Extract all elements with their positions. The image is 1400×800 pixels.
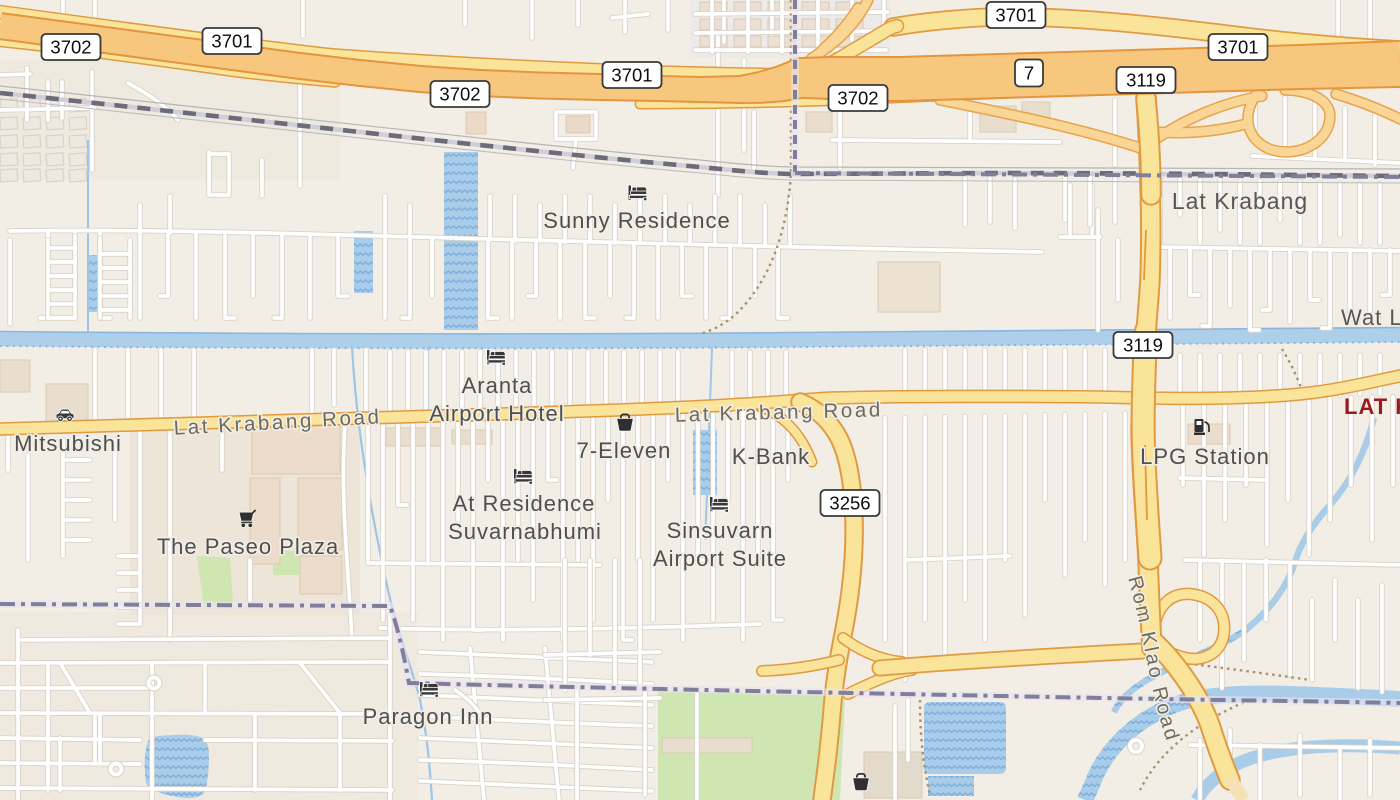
svg-text:7: 7 <box>1024 63 1034 84</box>
svg-text:3702: 3702 <box>50 37 91 58</box>
svg-text:3119: 3119 <box>1123 335 1163 356</box>
svg-text:Paragon Inn: Paragon Inn <box>363 704 494 729</box>
svg-text:Airport Hotel: Airport Hotel <box>429 401 564 426</box>
svg-text:3701: 3701 <box>611 65 652 86</box>
svg-text:Sinsuvarn: Sinsuvarn <box>667 518 774 543</box>
svg-text:The Paseo Plaza: The Paseo Plaza <box>157 534 340 559</box>
svg-text:Airport Suite: Airport Suite <box>653 546 787 571</box>
svg-text:Mitsubishi: Mitsubishi <box>14 431 122 456</box>
svg-text:3256: 3256 <box>829 493 870 514</box>
svg-text:At Residence: At Residence <box>453 491 596 516</box>
svg-text:LPG Station: LPG Station <box>1140 444 1270 469</box>
svg-text:Suvarnabhumi: Suvarnabhumi <box>448 519 602 544</box>
svg-text:3701: 3701 <box>1217 37 1258 58</box>
svg-text:7-Eleven: 7-Eleven <box>577 438 672 463</box>
svg-text:LAT K: LAT K <box>1344 394 1400 419</box>
svg-text:Aranta: Aranta <box>462 373 533 398</box>
svg-text:3119: 3119 <box>1126 70 1166 91</box>
svg-text:3701: 3701 <box>211 31 252 52</box>
svg-text:3702: 3702 <box>439 84 480 105</box>
svg-text:Lat Krabang: Lat Krabang <box>1172 188 1308 214</box>
svg-text:Sunny Residence: Sunny Residence <box>543 208 730 233</box>
svg-text:3701: 3701 <box>995 5 1036 26</box>
svg-text:K-Bank: K-Bank <box>732 444 810 469</box>
svg-text:3702: 3702 <box>837 88 878 109</box>
svg-text:Wat La: Wat La <box>1341 305 1400 330</box>
